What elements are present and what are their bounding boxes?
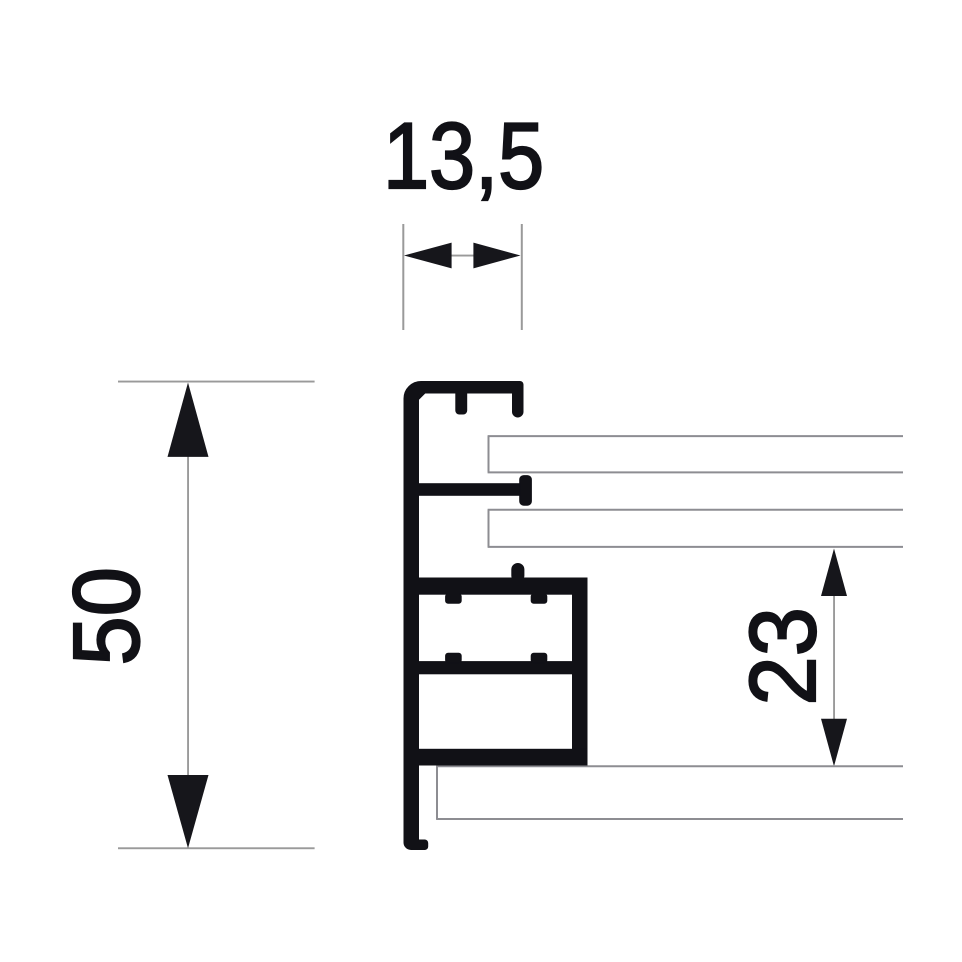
svg-text:50: 50 [54, 567, 159, 665]
svg-text:13,5: 13,5 [383, 103, 544, 208]
svg-text:23: 23 [731, 607, 836, 705]
